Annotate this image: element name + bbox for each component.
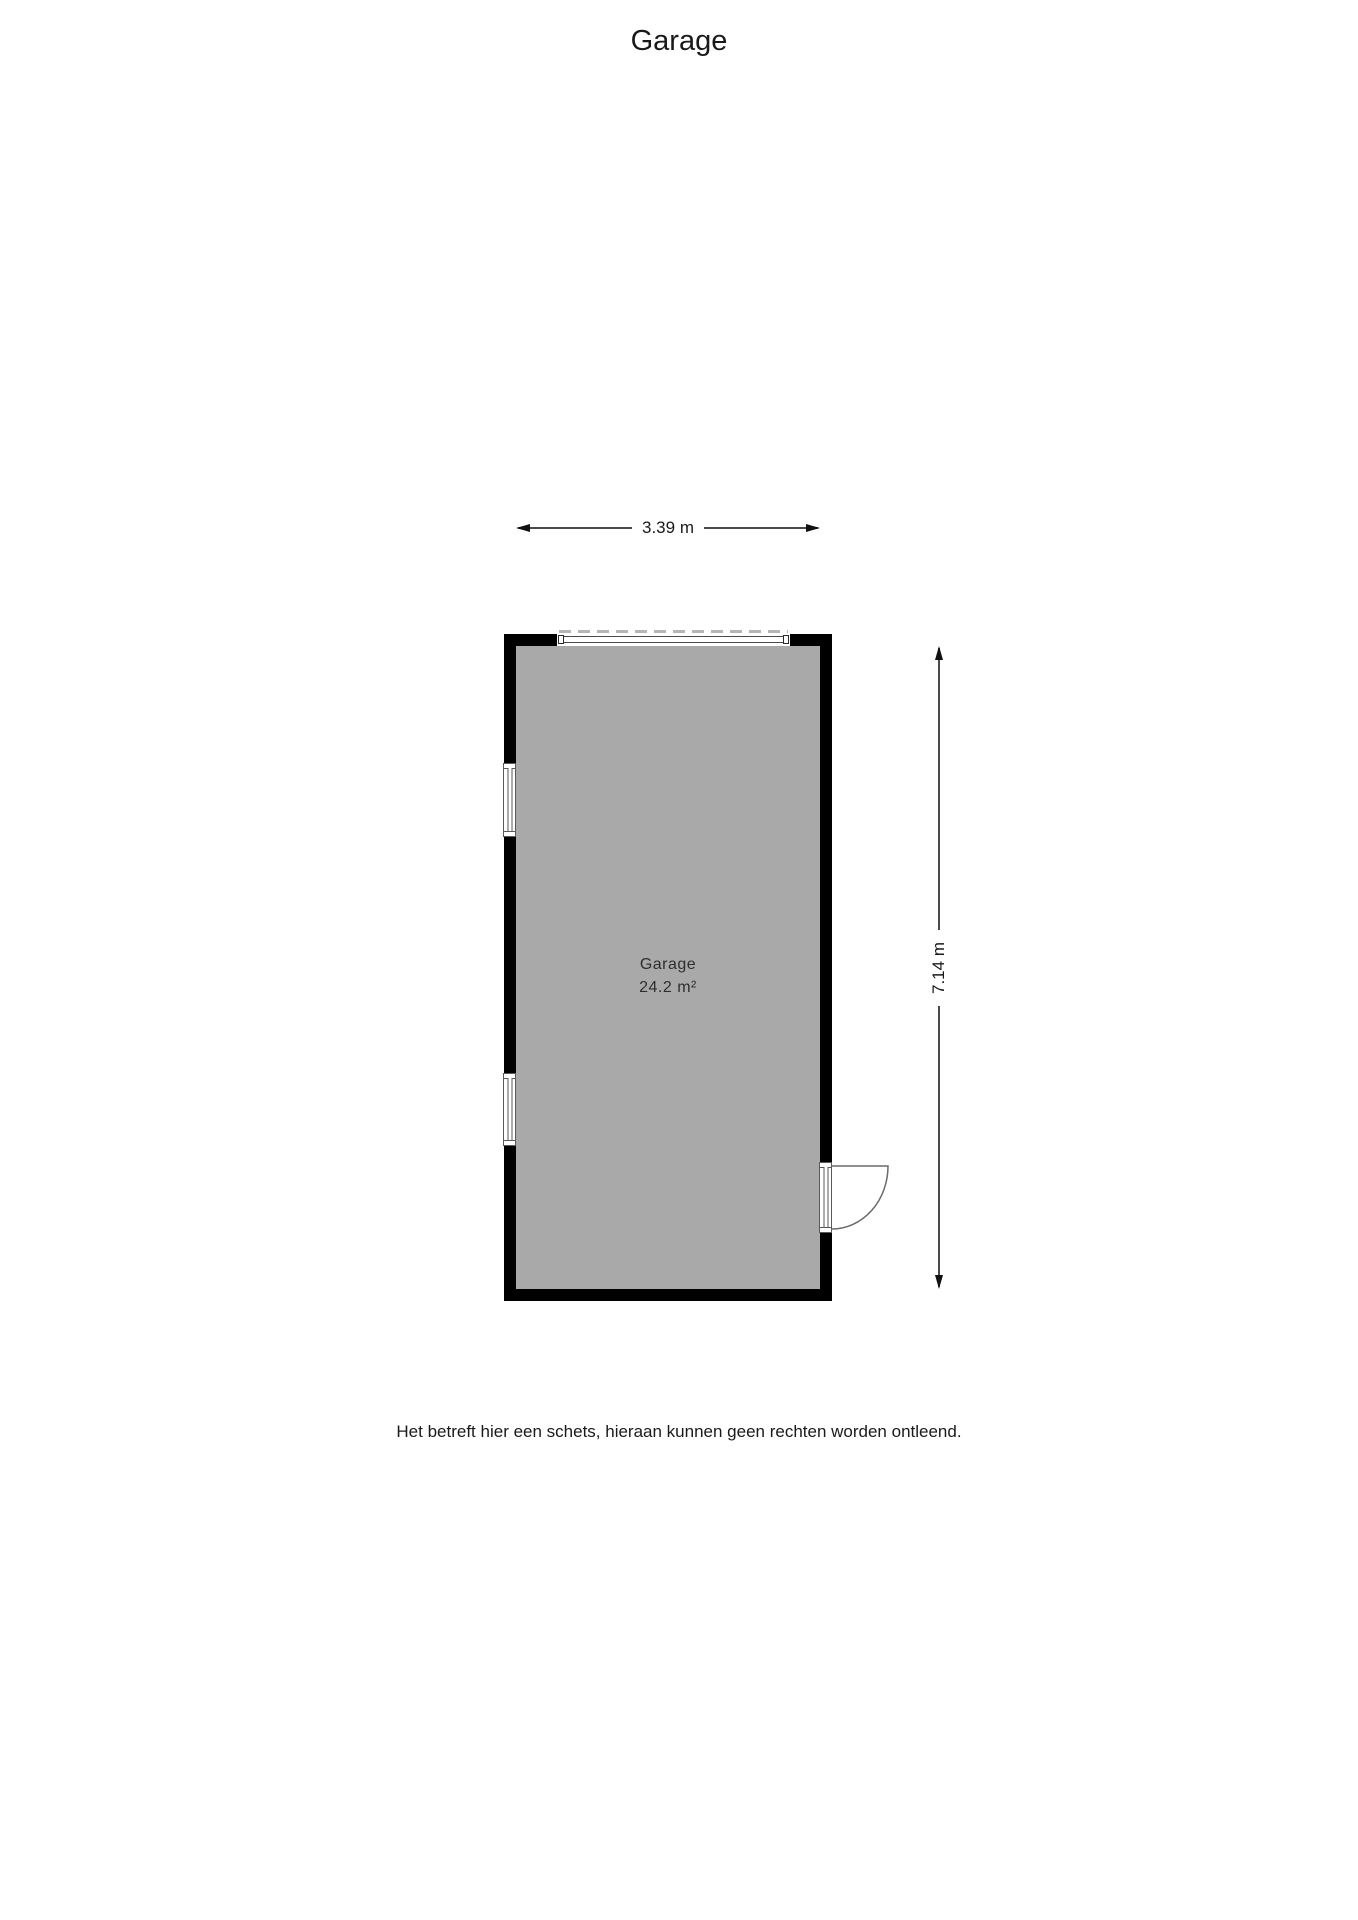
floorplan-page: Garage 3.39 m 7.14 m bbox=[0, 0, 1358, 1920]
room-area: 24.2 m² bbox=[639, 976, 697, 999]
window-pane-line bbox=[507, 1078, 512, 1141]
garage-door-post-left bbox=[558, 635, 564, 644]
window-left-upper bbox=[503, 763, 516, 837]
arrow-down-icon bbox=[935, 1275, 943, 1289]
window-pane-line bbox=[507, 768, 512, 832]
disclaimer-text: Het betreft hier een schets, hieraan kun… bbox=[0, 1422, 1358, 1442]
window-left-lower bbox=[503, 1073, 516, 1146]
garage-door-panel bbox=[561, 636, 786, 643]
door-swing-icon bbox=[832, 1162, 902, 1237]
garage-door-post-right bbox=[783, 635, 789, 644]
door-frame-line bbox=[823, 1167, 828, 1228]
page-title: Garage bbox=[0, 24, 1358, 58]
width-dimension-label: 3.39 m bbox=[632, 518, 704, 538]
garage-door-dashed-line bbox=[559, 630, 788, 633]
room-label: Garage 24.2 m² bbox=[639, 953, 697, 999]
height-dimension-label: 7.14 m bbox=[929, 930, 949, 1006]
room-name: Garage bbox=[639, 953, 697, 976]
arrow-left-icon bbox=[516, 524, 530, 532]
arrow-right-icon bbox=[806, 524, 820, 532]
floorplan: Garage 24.2 m² bbox=[504, 634, 832, 1301]
garage-door bbox=[557, 634, 790, 646]
entry-door-frame bbox=[819, 1162, 832, 1233]
arrow-up-icon bbox=[935, 646, 943, 660]
